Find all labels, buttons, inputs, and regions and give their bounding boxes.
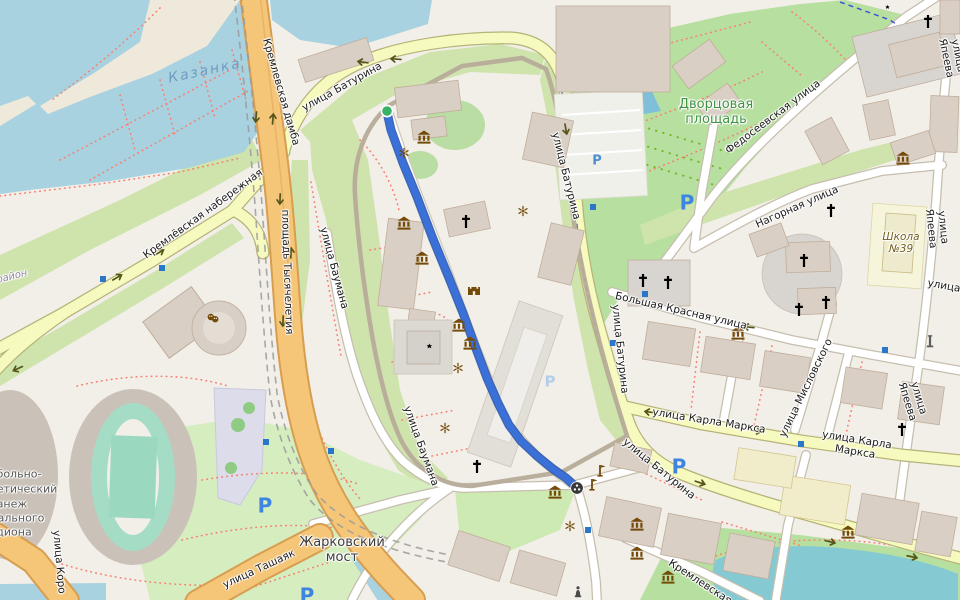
bus-stop-icon[interactable]	[642, 291, 648, 297]
museum-icon[interactable]	[398, 217, 411, 230]
bus-stop-icon[interactable]	[798, 441, 804, 447]
bus-stop-icon[interactable]	[610, 340, 616, 346]
bus-stop-icon[interactable]	[590, 204, 596, 210]
map-canvas[interactable]	[0, 0, 960, 600]
bus-stop-icon[interactable]	[263, 439, 269, 445]
fountain-icon[interactable]	[441, 423, 449, 432]
church-icon[interactable]	[473, 460, 481, 473]
monument-icon[interactable]	[927, 335, 933, 347]
fountain-icon[interactable]	[454, 363, 462, 372]
route-start-marker[interactable]	[381, 105, 394, 118]
bus-stop-icon[interactable]	[159, 265, 165, 271]
stadium-field	[109, 435, 158, 519]
castle-icon[interactable]	[468, 287, 480, 295]
route-end-marker[interactable]	[571, 482, 584, 495]
bus-stop-icon[interactable]	[585, 527, 591, 533]
fountain-icon[interactable]	[519, 206, 527, 215]
bus-stop-icon[interactable]	[100, 276, 106, 282]
church-icon[interactable]	[827, 204, 835, 217]
bus-stop-icon[interactable]	[882, 347, 888, 353]
fountain-icon[interactable]	[566, 521, 574, 530]
map[interactable]: КазанкаКремлевская дамбаулица БатуринаКр…	[0, 0, 960, 600]
statue-icon[interactable]	[575, 586, 581, 597]
bus-stop-icon[interactable]	[328, 448, 334, 454]
